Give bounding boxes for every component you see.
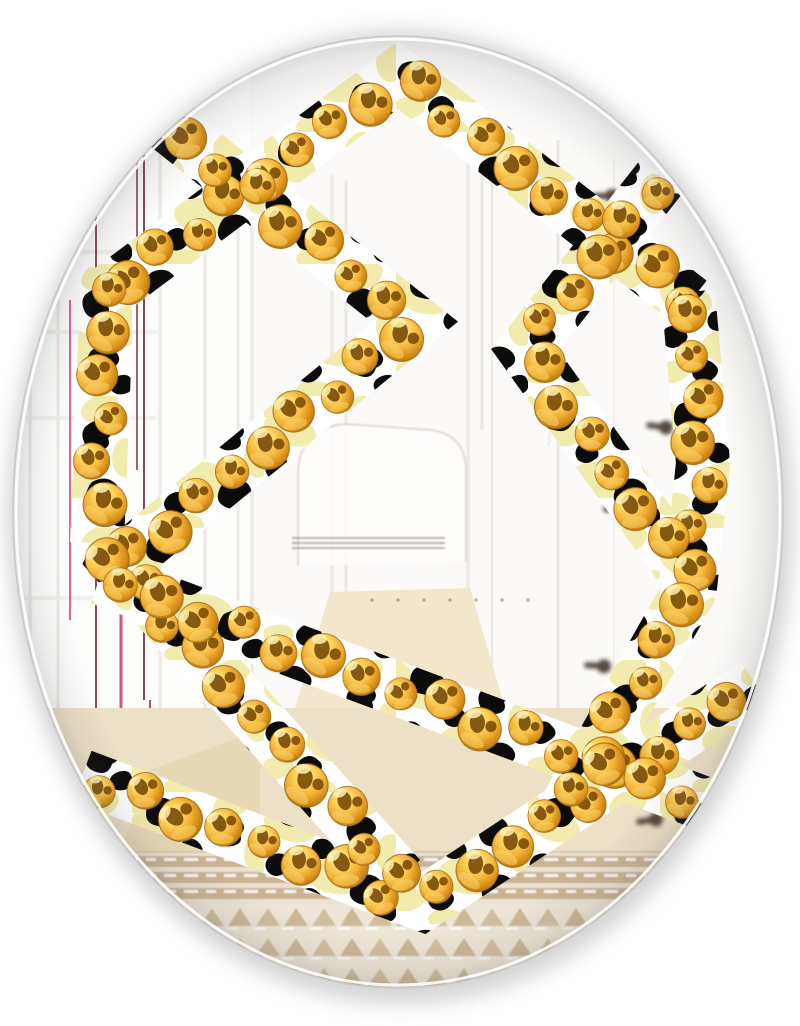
- mirror-product-photo: [0, 0, 800, 1026]
- product-photo-figure: Frameless oval wall mirror with a hexago…: [0, 0, 800, 1026]
- mirror-photo-svg: [0, 0, 800, 1026]
